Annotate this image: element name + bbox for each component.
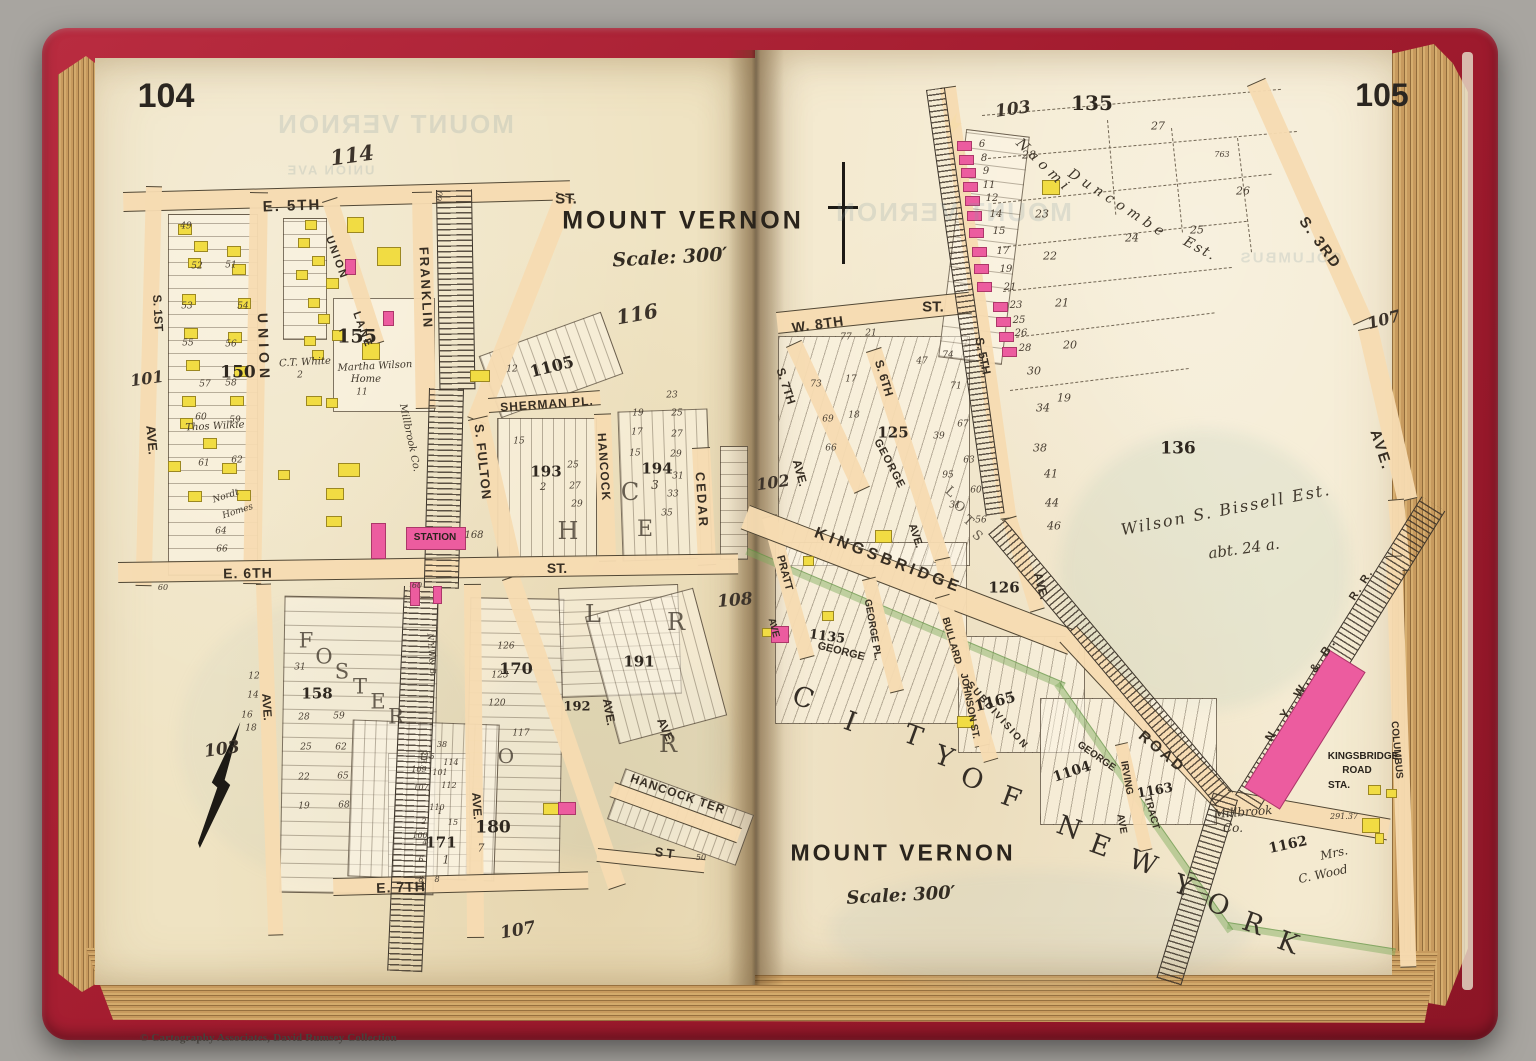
page-edge-left: [58, 56, 98, 992]
book-gutter: [728, 50, 784, 985]
copyright-note: © Cartography Associates, David Rumsey C…: [140, 1032, 397, 1044]
endpaper-strip: [1462, 52, 1473, 990]
atlas-book-screenshot: MOUNT VERNONUNION AVEMOUNT VERNONCOLUMBU…: [0, 0, 1536, 1061]
bleed-stain: [470, 640, 730, 860]
page-edge-right: [1392, 44, 1468, 1006]
pond-stain: [1060, 430, 1350, 710]
bleed-stain: [830, 870, 1250, 990]
bleed-stain: [180, 600, 480, 880]
